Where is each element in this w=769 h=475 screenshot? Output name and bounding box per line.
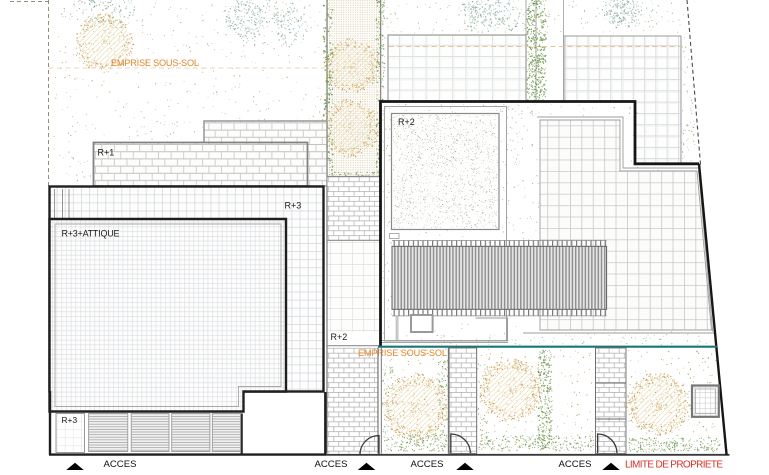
svg-text:R+3: R+3 bbox=[62, 415, 78, 425]
svg-text:ACCES: ACCES bbox=[558, 459, 591, 470]
svg-text:R+3: R+3 bbox=[285, 201, 302, 211]
svg-text:ACCES: ACCES bbox=[314, 459, 347, 470]
svg-text:ACCES: ACCES bbox=[410, 459, 443, 470]
svg-text:EMPRISE SOUS-SOL: EMPRISE SOUS-SOL bbox=[358, 348, 447, 358]
svg-text:R+2: R+2 bbox=[331, 332, 348, 342]
svg-text:R+3+ATTIQUE: R+3+ATTIQUE bbox=[62, 229, 120, 239]
svg-text:R+1: R+1 bbox=[98, 148, 115, 158]
svg-text:R+2: R+2 bbox=[398, 117, 415, 127]
svg-text:ACCES: ACCES bbox=[103, 459, 136, 470]
svg-text:LIMITE DE PROPRIETE: LIMITE DE PROPRIETE bbox=[625, 459, 723, 470]
svg-text:EMPRISE SOUS-SOL: EMPRISE SOUS-SOL bbox=[111, 58, 199, 68]
